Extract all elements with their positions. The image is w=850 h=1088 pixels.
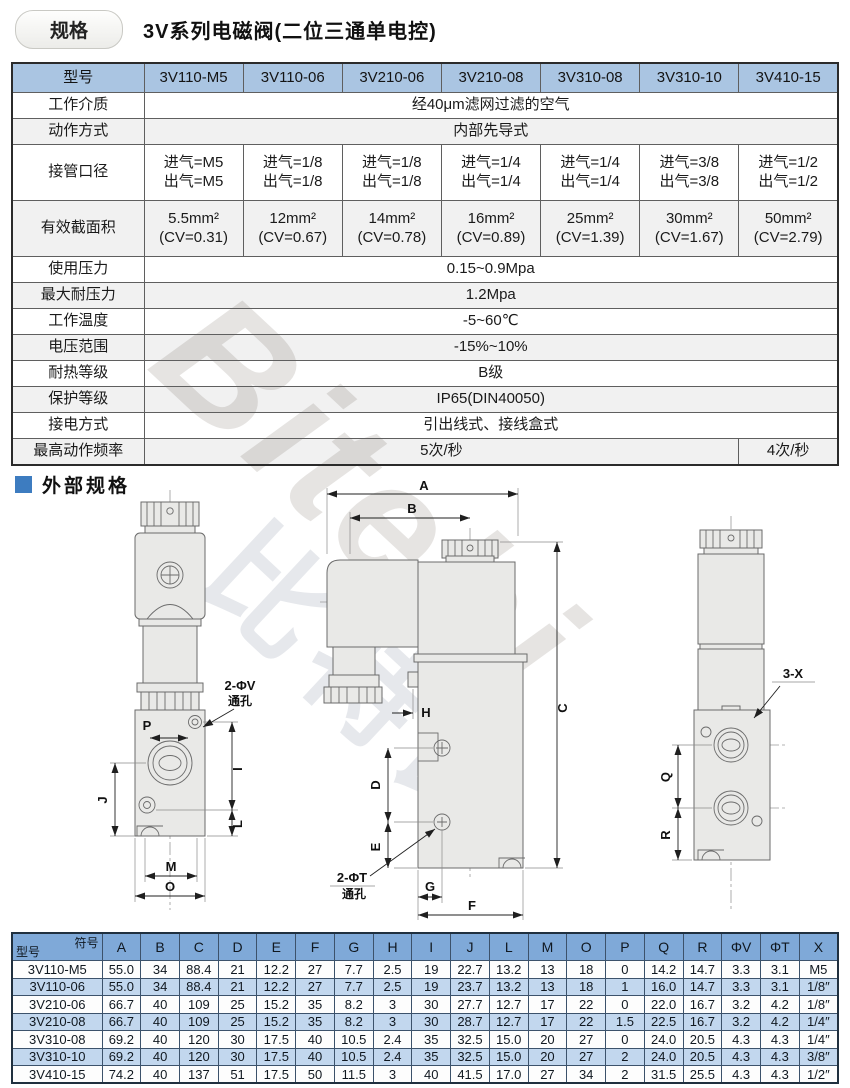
dim-label-L: L [230, 820, 245, 828]
dim-cell: 17 [528, 1013, 567, 1031]
dim-cell: 32.5 [451, 1048, 490, 1066]
dim-cell: 13.2 [489, 978, 528, 996]
dim-cell: 30 [218, 1031, 257, 1049]
dim-label-M: M [166, 859, 177, 874]
dim-cell: 15.0 [489, 1048, 528, 1066]
spec-row-label: 电压范围 [12, 335, 144, 361]
dim-label-E: E [368, 842, 383, 851]
dim-cell: 50 [296, 1066, 335, 1084]
dim-cell: 23.7 [451, 978, 490, 996]
dim-col-header: A [102, 933, 141, 961]
dim-cell: 16.0 [644, 978, 683, 996]
dim-label-G: G [425, 879, 435, 894]
dim-cell: 69.2 [102, 1031, 141, 1049]
dim-cell: 35 [296, 996, 335, 1014]
dim-row-model: 3V210-06 [12, 996, 102, 1014]
dim-cell: 3.2 [722, 996, 761, 1014]
dim-col-header: D [218, 933, 257, 961]
dim-label-Q: Q [658, 772, 673, 782]
dim-cell: 4.2 [760, 996, 799, 1014]
dim-cell: 30 [412, 1013, 451, 1031]
dim-label-C: C [555, 703, 570, 713]
dim-cell: 0 [606, 1031, 645, 1049]
spec-span-value: 内部先导式 [144, 119, 838, 145]
dim-cell: 12.2 [257, 961, 296, 979]
dim-label-F: F [468, 898, 476, 913]
dim-cell: 2.4 [373, 1048, 412, 1066]
dim-cell: 2.4 [373, 1031, 412, 1049]
spec-table: 型号3V110-M53V110-063V210-063V210-083V310-… [11, 62, 839, 466]
spec-cell: 30mm² (CV=1.67) [640, 201, 739, 257]
section-square-icon [15, 476, 32, 493]
spec-cell: 进气=3/8 出气=3/8 [640, 145, 739, 201]
dim-cell: 3.3 [722, 961, 761, 979]
spec-model-header: 3V310-10 [640, 63, 739, 93]
dim-label-B: B [407, 501, 416, 516]
drawing-front-view: P I L J M O 2-ΦV 通孔 [95, 490, 256, 910]
hole-label-2phiT: 2-ΦT [337, 870, 367, 885]
dim-cell: 30 [412, 996, 451, 1014]
dim-cell: 17 [528, 996, 567, 1014]
dim-cell: 12.2 [257, 978, 296, 996]
dim-cell: 21 [218, 961, 257, 979]
dim-cell: 22 [567, 996, 606, 1014]
dim-cell: 20.5 [683, 1048, 722, 1066]
dim-cell: 27 [567, 1048, 606, 1066]
spec-cell: 14mm² (CV=0.78) [342, 201, 441, 257]
dim-cell: 3.3 [722, 978, 761, 996]
dim-col-header: P [606, 933, 645, 961]
dim-cell: 7.7 [334, 978, 373, 996]
dim-cell: 8.2 [334, 1013, 373, 1031]
dim-col-header: F [296, 933, 335, 961]
section-external-spec: 外部规格 [15, 471, 130, 498]
drawing-side-view: A B C H [320, 478, 570, 920]
spec-cell: 进气=1/4 出气=1/4 [541, 145, 640, 201]
dim-cell: 40 [412, 1066, 451, 1084]
spec-span-value: 1.2Mpa [144, 283, 838, 309]
spec-row: 耐热等级B级 [12, 361, 838, 387]
dim-cell: 31.5 [644, 1066, 683, 1084]
spec-row: 工作介质经40μm滤网过滤的空气 [12, 93, 838, 119]
dim-cell: 14.7 [683, 978, 722, 996]
dim-col-header: M [528, 933, 567, 961]
spec-row-label: 最大耐压力 [12, 283, 144, 309]
dim-cell: 11.5 [334, 1066, 373, 1084]
dim-row-model: 3V310-08 [12, 1031, 102, 1049]
dim-cell: 22.0 [644, 996, 683, 1014]
dim-label-A: A [419, 478, 429, 493]
dim-cell: 22 [567, 1013, 606, 1031]
dim-cell: 4.3 [760, 1066, 799, 1084]
spec-row: 使用压力0.15~0.9Mpa [12, 257, 838, 283]
dim-cell: 24.0 [644, 1048, 683, 1066]
dim-cell: 15.0 [489, 1031, 528, 1049]
spec-row: 接管口径进气=M5 出气=M5进气=1/8 出气=1/8进气=1/8 出气=1/… [12, 145, 838, 201]
dim-cell: 28.7 [451, 1013, 490, 1031]
dim-cell: 24.0 [644, 1031, 683, 1049]
dim-cell: 3 [373, 1066, 412, 1084]
dim-label-I: I [230, 767, 245, 771]
dim-cell: 10.5 [334, 1031, 373, 1049]
dim-row: 3V310-1069.2401203017.54010.52.43532.515… [12, 1048, 838, 1066]
dim-cell: 55.0 [102, 978, 141, 996]
dim-row: 3V110-0655.03488.42112.2277.72.51923.713… [12, 978, 838, 996]
dim-label-R: R [658, 830, 673, 840]
dim-cell: 0 [606, 996, 645, 1014]
dim-cell: 4.3 [760, 1031, 799, 1049]
dim-cell: 2 [606, 1066, 645, 1084]
dim-label-P: P [143, 718, 152, 733]
spec-cell: 25mm² (CV=1.39) [541, 201, 640, 257]
spec-split-main: 5次/秒 [144, 439, 739, 465]
dim-cell: 22.7 [451, 961, 490, 979]
spec-row: 接电方式引出线式、接线盒式 [12, 413, 838, 439]
dim-col-header: I [412, 933, 451, 961]
dim-cell: 109 [179, 996, 218, 1014]
dim-col-header: J [451, 933, 490, 961]
dim-cell: 4.2 [760, 1013, 799, 1031]
spec-row: 最大耐压力1.2Mpa [12, 283, 838, 309]
dim-cell: 137 [179, 1066, 218, 1084]
dim-cell: 16.7 [683, 1013, 722, 1031]
dim-cell: 15.2 [257, 1013, 296, 1031]
dim-cell: 25 [218, 1013, 257, 1031]
spec-span-value: 0.15~0.9Mpa [144, 257, 838, 283]
dim-cell: 27 [296, 978, 335, 996]
dim-label-O: O [165, 879, 175, 894]
dim-cell: 1/4″ [799, 1031, 838, 1049]
dim-cell: 3.1 [760, 978, 799, 996]
dim-cell: 35 [412, 1048, 451, 1066]
spec-row-label: 工作温度 [12, 309, 144, 335]
spec-badge: 规格 [15, 10, 123, 49]
dim-row-model: 3V310-10 [12, 1048, 102, 1066]
dim-cell: 19 [412, 961, 451, 979]
dim-cell: 15.2 [257, 996, 296, 1014]
spec-model-header: 3V210-06 [342, 63, 441, 93]
spec-span-value: 经40μm滤网过滤的空气 [144, 93, 838, 119]
dim-cell: 120 [179, 1031, 218, 1049]
dim-cell: 21 [218, 978, 257, 996]
dim-cell: 22.5 [644, 1013, 683, 1031]
dim-cell: 30 [218, 1048, 257, 1066]
dim-cell: 27.7 [451, 996, 490, 1014]
dim-cell: 40 [141, 1066, 180, 1084]
dim-cell: 20 [528, 1048, 567, 1066]
spec-corner-label: 型号 [12, 63, 144, 93]
dim-cell: 7.7 [334, 961, 373, 979]
port-label-3X: 3-X [783, 666, 804, 681]
dim-corner-cell: 符号 型号 [12, 933, 102, 961]
dim-cell: 4.3 [722, 1031, 761, 1049]
dim-col-header: ΦV [722, 933, 761, 961]
dim-cell: 27 [567, 1031, 606, 1049]
dim-cell: 14.2 [644, 961, 683, 979]
spec-model-header: 3V110-M5 [144, 63, 243, 93]
spec-cell: 进气=M5 出气=M5 [144, 145, 243, 201]
dim-cell: 3.2 [722, 1013, 761, 1031]
dim-row: 3V210-0666.7401092515.2358.233027.712.71… [12, 996, 838, 1014]
dim-cell: 40 [296, 1031, 335, 1049]
dim-cell: 34 [141, 978, 180, 996]
dim-cell: 12.7 [489, 1013, 528, 1031]
dim-cell: 18 [567, 978, 606, 996]
spec-row-label: 保护等级 [12, 387, 144, 413]
dim-cell: 13 [528, 961, 567, 979]
dim-cell: 0 [606, 961, 645, 979]
dim-cell: 1/8″ [799, 996, 838, 1014]
dim-cell: 14.7 [683, 961, 722, 979]
dim-cell: 4.3 [722, 1048, 761, 1066]
dim-col-header: B [141, 933, 180, 961]
dim-cell: 35 [412, 1031, 451, 1049]
hole-label-through-2: 通孔 [342, 886, 366, 901]
dim-cell: 17.5 [257, 1031, 296, 1049]
spec-row-label: 接电方式 [12, 413, 144, 439]
dim-cell: 3.1 [760, 961, 799, 979]
dim-cell: 88.4 [179, 961, 218, 979]
dim-cell: 1/4″ [799, 1013, 838, 1031]
dim-cell: 18 [567, 961, 606, 979]
spec-row: 最高动作频率5次/秒4次/秒 [12, 439, 838, 465]
dim-cell: 25 [218, 996, 257, 1014]
dim-cell: 34 [141, 961, 180, 979]
dim-row: 3V310-0869.2401203017.54010.52.43532.515… [12, 1031, 838, 1049]
spec-cell: 进气=1/8 出气=1/8 [243, 145, 342, 201]
spec-row: 工作温度-5~60℃ [12, 309, 838, 335]
spec-model-header: 3V110-06 [243, 63, 342, 93]
spec-cell: 进气=1/4 出气=1/4 [441, 145, 540, 201]
dim-cell: 1.5 [606, 1013, 645, 1031]
spec-span-value: -5~60℃ [144, 309, 838, 335]
dim-cell: 35 [296, 1013, 335, 1031]
dim-cell: 88.4 [179, 978, 218, 996]
spec-model-header: 3V410-15 [739, 63, 838, 93]
dim-col-header: ΦT [760, 933, 799, 961]
spec-cell: 16mm² (CV=0.89) [441, 201, 540, 257]
spec-span-value: 引出线式、接线盒式 [144, 413, 838, 439]
dim-row: 3V210-0866.7401092515.2358.233028.712.71… [12, 1013, 838, 1031]
dim-col-header: R [683, 933, 722, 961]
dim-cell: 27 [296, 961, 335, 979]
dim-cell: 34 [567, 1066, 606, 1084]
dim-cell: 40 [141, 1048, 180, 1066]
dim-row: 3V110-M555.03488.42112.2277.72.51922.713… [12, 961, 838, 979]
spec-row-label: 动作方式 [12, 119, 144, 145]
dim-cell: 1 [606, 978, 645, 996]
spec-row-label: 最高动作频率 [12, 439, 144, 465]
spec-span-value: IP65(DIN40050) [144, 387, 838, 413]
spec-row-label: 接管口径 [12, 145, 144, 201]
spec-cell: 进气=1/2 出气=1/2 [739, 145, 838, 201]
spec-row-label: 有效截面积 [12, 201, 144, 257]
dim-row: 3V410-1574.2401375117.55011.534041.517.0… [12, 1066, 838, 1084]
spec-row: 保护等级IP65(DIN40050) [12, 387, 838, 413]
dim-table-body: 3V110-M555.03488.42112.2277.72.51922.713… [12, 961, 838, 1084]
spec-cell: 50mm² (CV=2.79) [739, 201, 838, 257]
spec-cell: 5.5mm² (CV=0.31) [144, 201, 243, 257]
dim-cell: 40 [141, 996, 180, 1014]
spec-row-label: 使用压力 [12, 257, 144, 283]
dim-cell: 3 [373, 1013, 412, 1031]
hole-label-through-1: 通孔 [228, 693, 252, 708]
spec-split-last: 4次/秒 [739, 439, 838, 465]
dim-cell: 69.2 [102, 1048, 141, 1066]
dim-label-H: H [421, 705, 430, 720]
dim-cell: 40 [296, 1048, 335, 1066]
hole-label-2phiV: 2-ΦV [225, 678, 256, 693]
section-title: 外部规格 [42, 471, 130, 498]
dim-corner-model-label: 型号 [16, 943, 40, 960]
dim-cell: 1/8″ [799, 978, 838, 996]
dim-cell: 4.3 [722, 1066, 761, 1084]
dim-label-J: J [95, 796, 110, 803]
dim-cell: 40 [141, 1013, 180, 1031]
spec-model-header: 3V310-08 [541, 63, 640, 93]
spec-span-value: -15%~10% [144, 335, 838, 361]
dimension-table: 符号 型号 ABCDEFGHIJLMOPQRΦVΦTX 3V110-M555.0… [11, 932, 839, 1084]
valve-dimension-drawings: P I L J M O 2-ΦV 通孔 A B [0, 478, 850, 930]
dim-col-header: O [567, 933, 606, 961]
dim-cell: 66.7 [102, 1013, 141, 1031]
dim-cell: 109 [179, 1013, 218, 1031]
page-title: 3V系列电磁阀(二位三通单电控) [143, 15, 437, 44]
dim-col-header: Q [644, 933, 683, 961]
spec-cell: 12mm² (CV=0.67) [243, 201, 342, 257]
dim-row-model: 3V110-06 [12, 978, 102, 996]
dim-cell: 1/2″ [799, 1066, 838, 1084]
dim-cell: 55.0 [102, 961, 141, 979]
dim-cell: 20 [528, 1031, 567, 1049]
spec-row: 有效截面积5.5mm² (CV=0.31)12mm² (CV=0.67)14mm… [12, 201, 838, 257]
dim-col-header: X [799, 933, 838, 961]
dim-cell: 41.5 [451, 1066, 490, 1084]
dim-cell: 74.2 [102, 1066, 141, 1084]
spec-row: 动作方式内部先导式 [12, 119, 838, 145]
dim-cell: 12.7 [489, 996, 528, 1014]
dim-header-row: 符号 型号 ABCDEFGHIJLMOPQRΦVΦTX [12, 933, 838, 961]
dim-cell: 32.5 [451, 1031, 490, 1049]
dim-cell: 66.7 [102, 996, 141, 1014]
dim-col-header: C [179, 933, 218, 961]
dim-cell: 2 [606, 1048, 645, 1066]
spec-header-row: 型号3V110-M53V110-063V210-063V210-083V310-… [12, 63, 838, 93]
dim-cell: 16.7 [683, 996, 722, 1014]
dim-col-header: H [373, 933, 412, 961]
dim-cell: 51 [218, 1066, 257, 1084]
dim-cell: 10.5 [334, 1048, 373, 1066]
spec-span-value: B级 [144, 361, 838, 387]
spec-table-body: 工作介质经40μm滤网过滤的空气动作方式内部先导式接管口径进气=M5 出气=M5… [12, 93, 838, 465]
dim-cell: 17.0 [489, 1066, 528, 1084]
spec-cell: 进气=1/8 出气=1/8 [342, 145, 441, 201]
spec-row-label: 工作介质 [12, 93, 144, 119]
dim-corner-symbol-label: 符号 [74, 934, 98, 951]
dim-cell: 25.5 [683, 1066, 722, 1084]
dim-cell: 40 [141, 1031, 180, 1049]
dim-cell: 17.5 [257, 1048, 296, 1066]
spec-row: 电压范围-15%~10% [12, 335, 838, 361]
dim-cell: 17.5 [257, 1066, 296, 1084]
spec-model-header: 3V210-08 [441, 63, 540, 93]
dim-row-model: 3V110-M5 [12, 961, 102, 979]
dim-col-header: L [489, 933, 528, 961]
dim-cell: 19 [412, 978, 451, 996]
dim-cell: 2.5 [373, 961, 412, 979]
dim-label-D: D [368, 780, 383, 789]
dim-cell: 2.5 [373, 978, 412, 996]
dim-cell: 13 [528, 978, 567, 996]
spec-row-label: 耐热等级 [12, 361, 144, 387]
dim-cell: 8.2 [334, 996, 373, 1014]
drawing-back-view: 3-X Q R [658, 516, 815, 910]
dim-col-header: G [334, 933, 373, 961]
dim-cell: 120 [179, 1048, 218, 1066]
dim-col-header: E [257, 933, 296, 961]
dim-cell: 4.3 [760, 1048, 799, 1066]
dim-row-model: 3V210-08 [12, 1013, 102, 1031]
page-header: 规格 3V系列电磁阀(二位三通单电控) [15, 10, 437, 49]
dim-cell: 13.2 [489, 961, 528, 979]
dim-cell: 3 [373, 996, 412, 1014]
dim-row-model: 3V410-15 [12, 1066, 102, 1084]
dim-cell: 20.5 [683, 1031, 722, 1049]
dim-cell: 3/8″ [799, 1048, 838, 1066]
dim-cell: 27 [528, 1066, 567, 1084]
dim-cell: M5 [799, 961, 838, 979]
